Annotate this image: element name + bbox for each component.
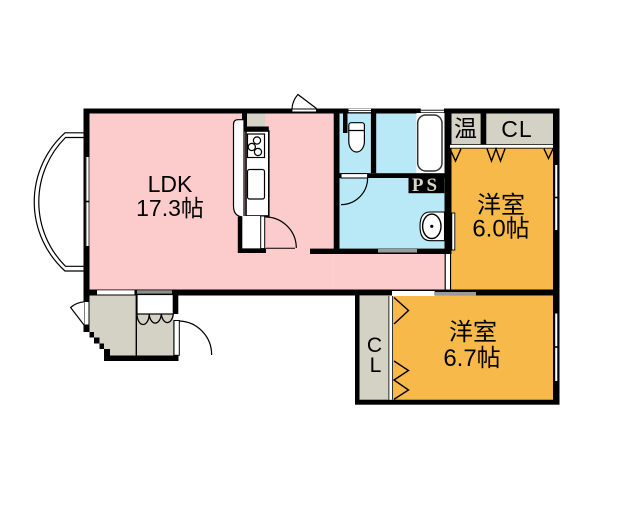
svg-text:洋室: 洋室	[449, 319, 497, 346]
svg-text:6.7帖: 6.7帖	[443, 345, 500, 372]
svg-text:温: 温	[454, 116, 477, 142]
svg-text:CL: CL	[501, 116, 532, 142]
svg-text:LDK: LDK	[148, 171, 193, 197]
svg-text:17.3帖: 17.3帖	[136, 195, 204, 221]
svg-text:PS: PS	[412, 175, 440, 196]
svg-text:L: L	[370, 354, 382, 377]
svg-text:6.0帖: 6.0帖	[472, 216, 529, 243]
